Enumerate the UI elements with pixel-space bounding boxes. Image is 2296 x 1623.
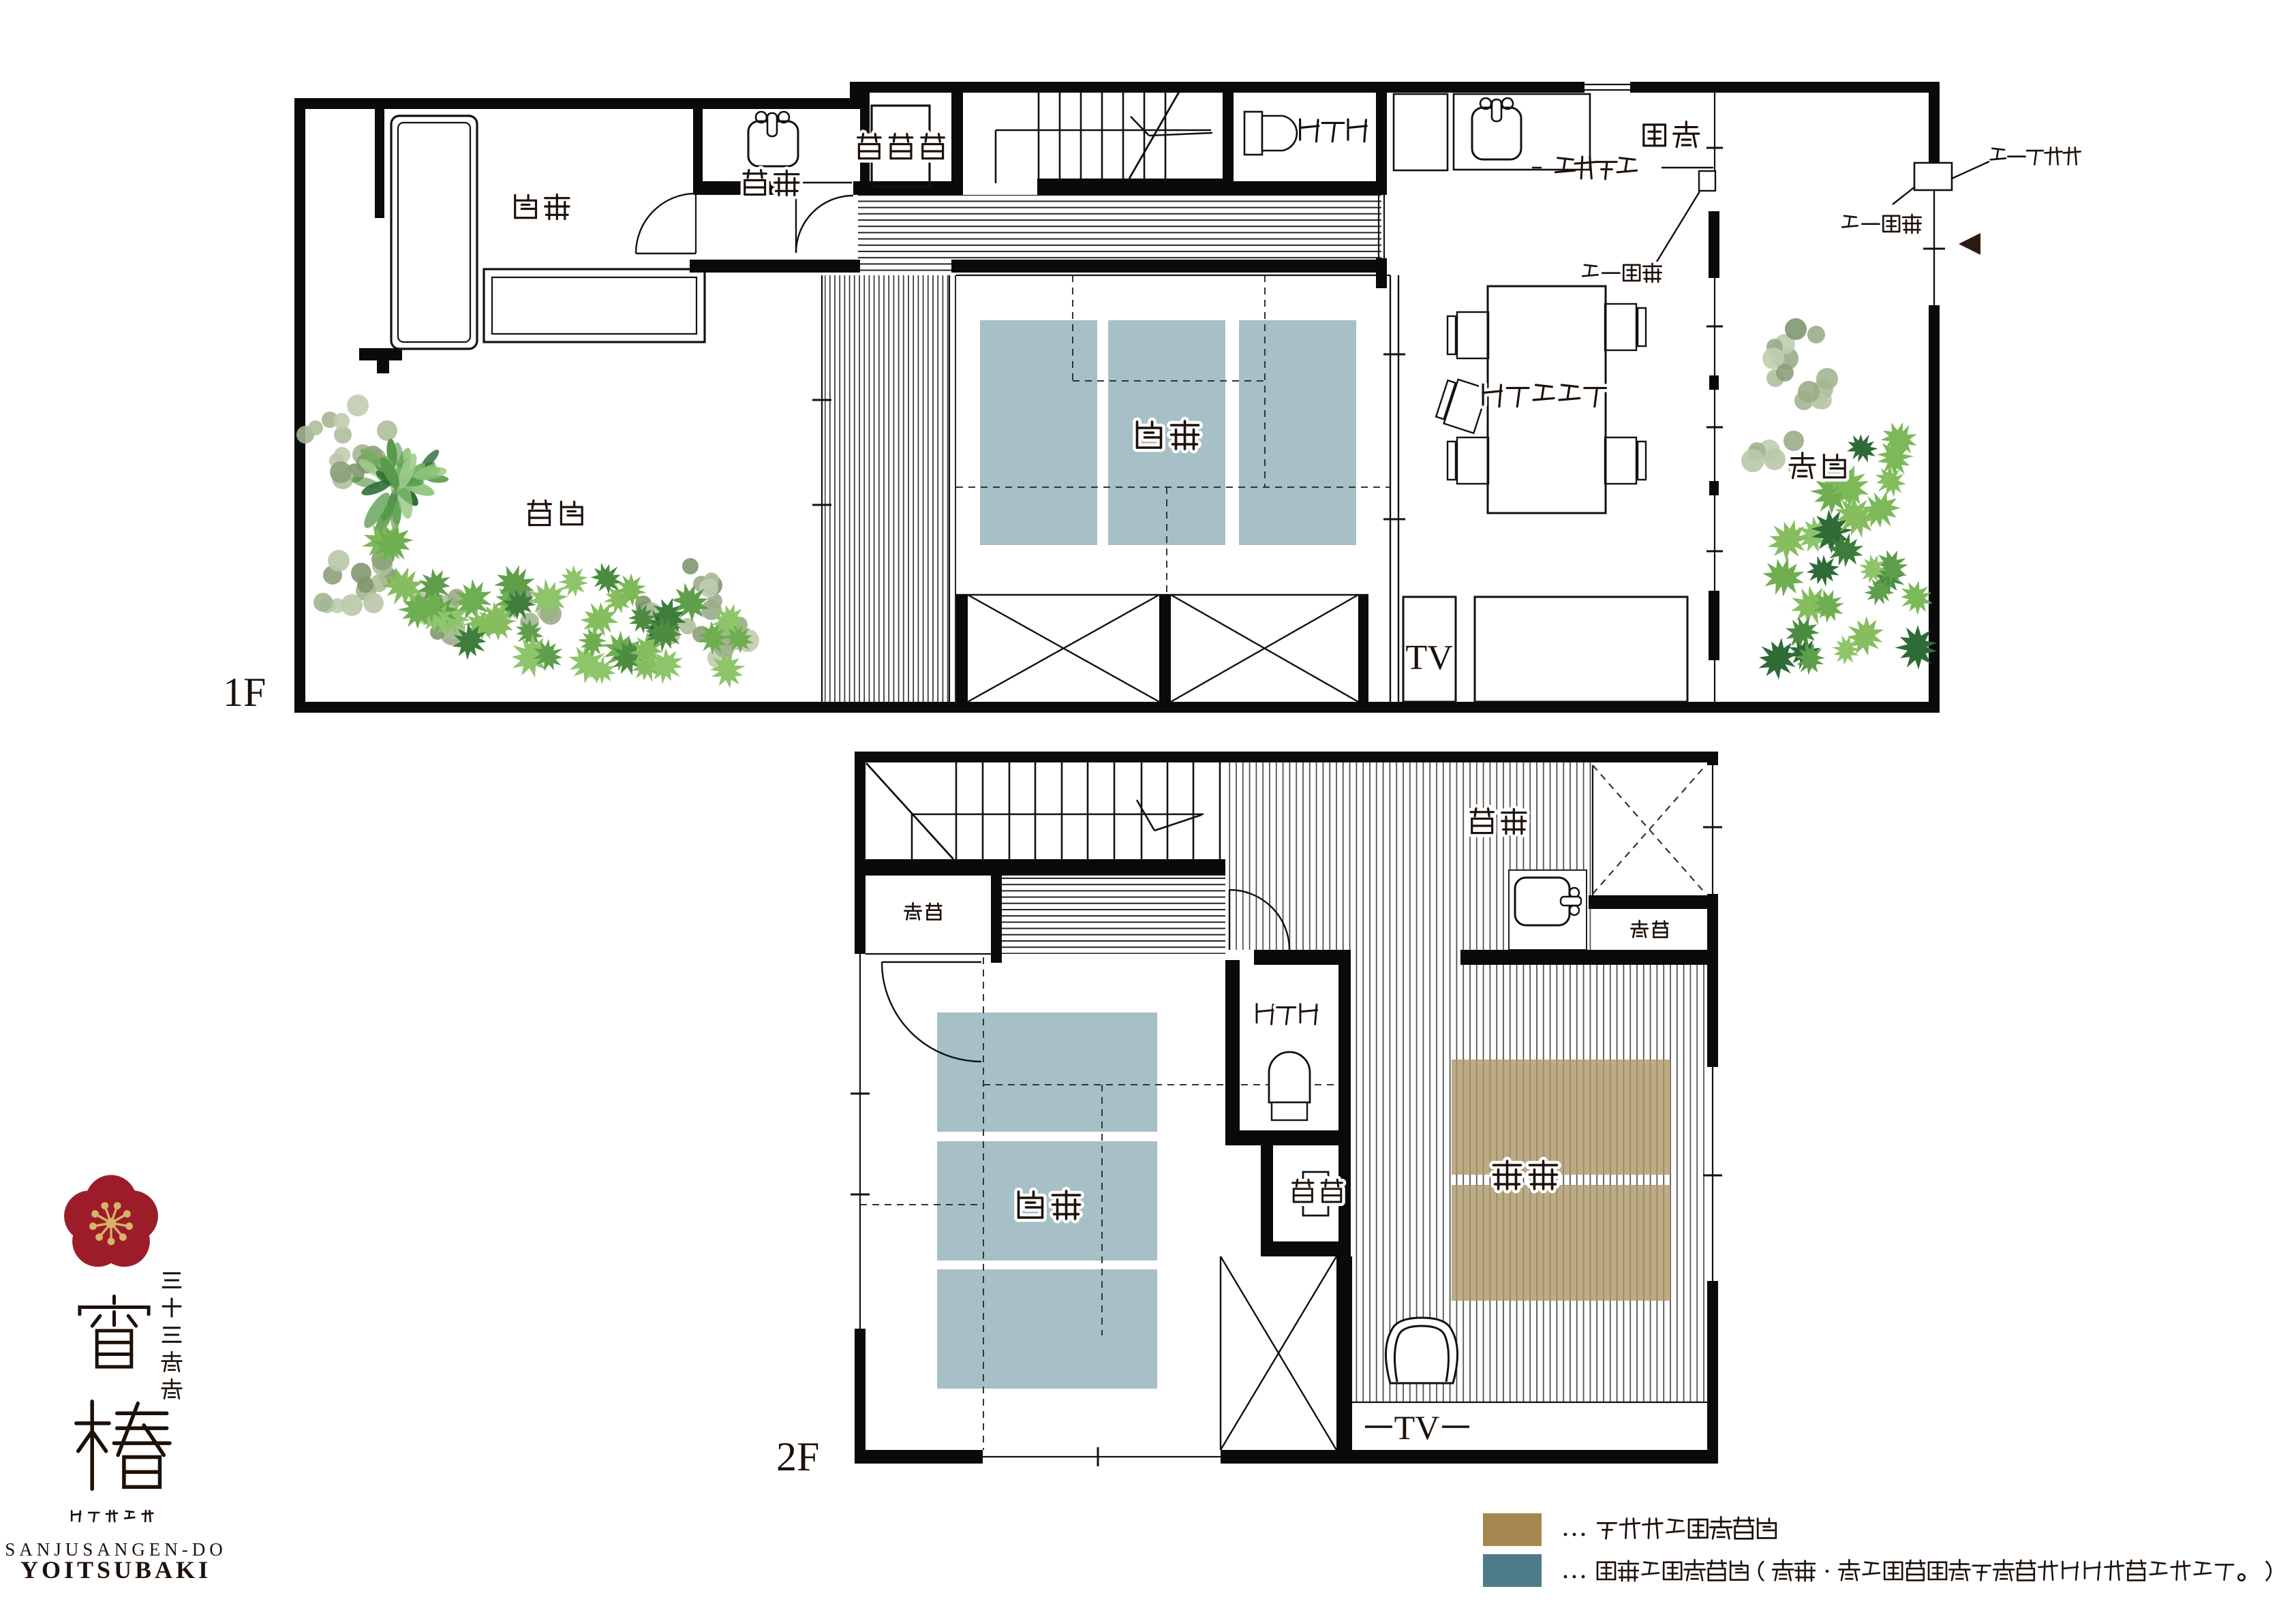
svg-text:TV: TV <box>1405 638 1452 677</box>
svg-text:TV: TV <box>1394 1408 1440 1447</box>
svg-text:YOITSUBAKI: YOITSUBAKI <box>20 1556 211 1583</box>
svg-text:2F: 2F <box>776 1434 819 1479</box>
svg-text:1F: 1F <box>223 670 266 715</box>
